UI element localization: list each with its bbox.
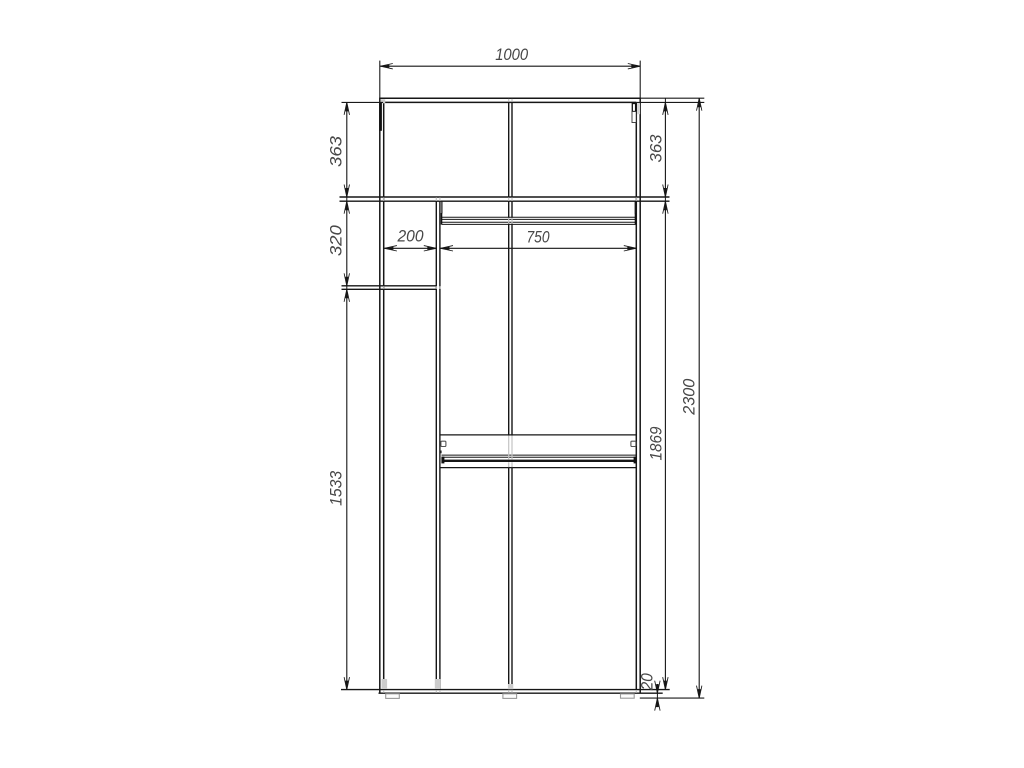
svg-text:200: 200 — [397, 228, 425, 246]
svg-text:363: 363 — [327, 135, 345, 167]
svg-text:20: 20 — [638, 672, 656, 691]
svg-text:363: 363 — [647, 134, 665, 163]
svg-text:1869: 1869 — [647, 427, 665, 461]
svg-text:750: 750 — [527, 228, 551, 246]
svg-text:2300: 2300 — [680, 378, 698, 416]
svg-text:320: 320 — [327, 224, 345, 256]
svg-text:1533: 1533 — [327, 470, 345, 506]
svg-text:1000: 1000 — [495, 46, 529, 64]
